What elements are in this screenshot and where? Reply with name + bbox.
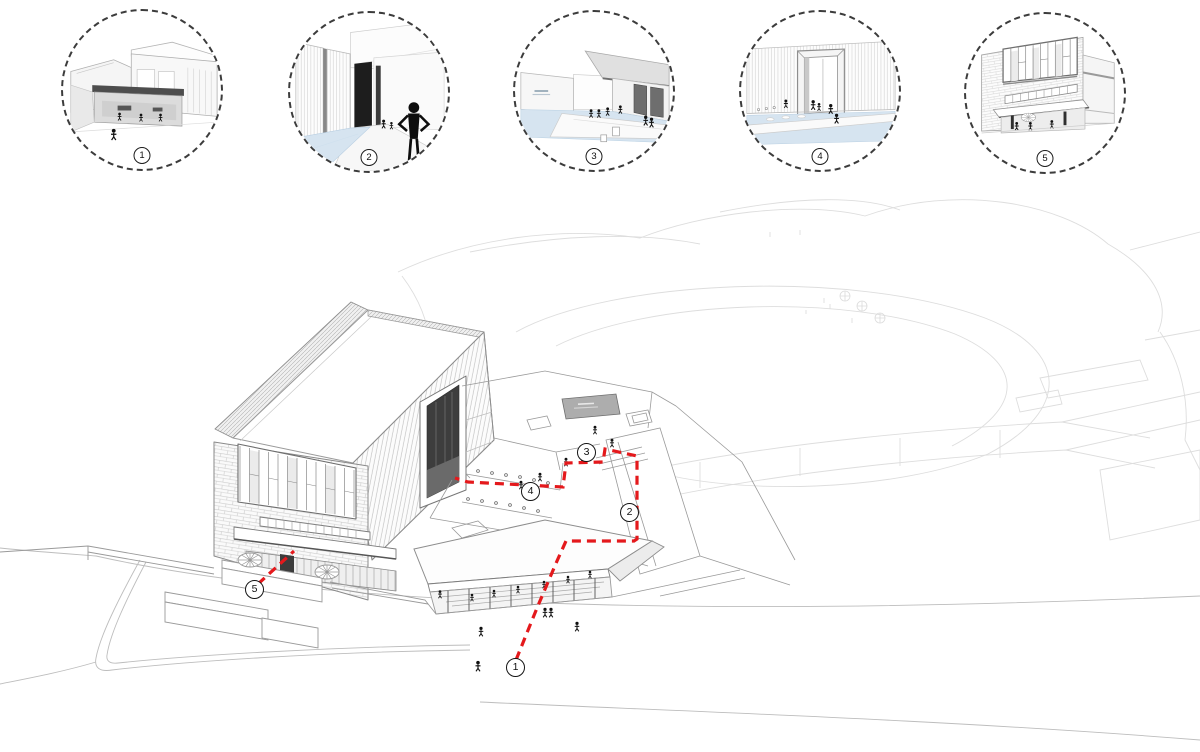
route-marker-4: 4 xyxy=(521,482,540,501)
vignette-number-3: 3 xyxy=(591,151,596,162)
umbrella-icon xyxy=(238,553,262,567)
vignette-circle-5: 5 xyxy=(964,12,1126,174)
vignette-scene-sunken-plaza xyxy=(515,12,673,170)
vignette-badge-4: 4 xyxy=(812,148,829,165)
route-marker-number-4: 4 xyxy=(528,485,534,497)
background-umbrellas xyxy=(770,230,885,323)
umbrella-icon xyxy=(315,565,339,579)
vignette-circle-3: 3 xyxy=(513,10,675,172)
route-marker-number-3: 3 xyxy=(584,446,590,458)
background-complex xyxy=(398,200,1200,540)
vignette-scene-entrance-canopy xyxy=(63,11,221,169)
route-marker-number-2: 2 xyxy=(627,506,633,518)
vignette-circle-1: 1 xyxy=(61,9,223,171)
route-marker-1: 1 xyxy=(506,658,525,677)
vignette-number-1: 1 xyxy=(139,150,144,161)
route-marker-5: 5 xyxy=(245,580,264,599)
route-marker-3: 3 xyxy=(577,443,596,462)
vignette-number-4: 4 xyxy=(817,151,822,162)
vignette-scene-brick-facade xyxy=(966,14,1124,172)
vignette-badge-2: 2 xyxy=(361,149,378,166)
vignette-circle-4: 4 xyxy=(739,10,901,172)
vignette-scene-water-corridor xyxy=(290,13,448,171)
vignette-circle-2: 2 xyxy=(288,11,450,173)
vignette-scene-portal-gate xyxy=(741,12,899,170)
sign-wall xyxy=(562,394,620,419)
vignette-badge-5: 5 xyxy=(1037,150,1054,167)
route-marker-number-5: 5 xyxy=(252,583,258,595)
vignette-badge-3: 3 xyxy=(586,148,603,165)
vignette-number-5: 5 xyxy=(1042,153,1047,164)
route-marker-number-1: 1 xyxy=(513,661,519,673)
route-marker-2: 2 xyxy=(620,503,639,522)
terrace-annex xyxy=(0,546,436,648)
vignette-number-2: 2 xyxy=(366,152,371,163)
architectural-circulation-diagram: 1 2 xyxy=(0,0,1200,752)
vignette-badge-1: 1 xyxy=(134,147,151,164)
